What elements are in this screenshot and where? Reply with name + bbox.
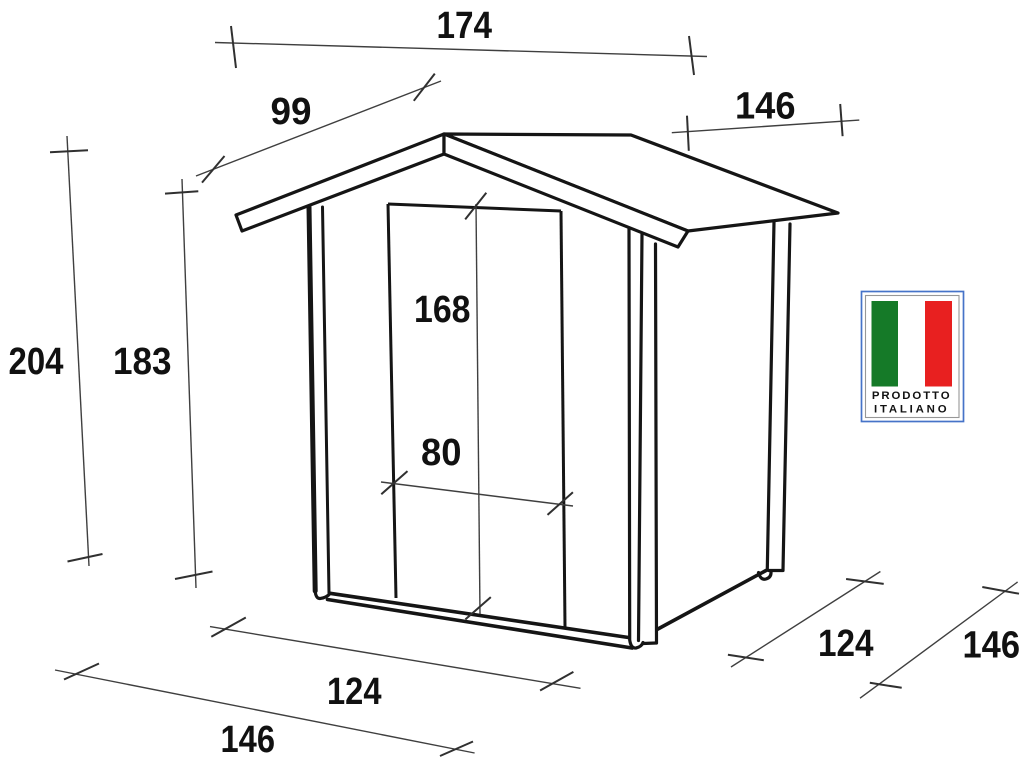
svg-text:183: 183	[113, 341, 172, 383]
svg-text:146: 146	[735, 86, 796, 128]
svg-text:ITALIANO: ITALIANO	[874, 404, 949, 416]
svg-text:174: 174	[437, 5, 493, 47]
svg-text:168: 168	[414, 289, 471, 331]
svg-text:80: 80	[421, 432, 462, 474]
svg-text:99: 99	[271, 91, 312, 133]
svg-text:124: 124	[818, 623, 874, 665]
svg-text:124: 124	[327, 671, 382, 713]
svg-text:PRODOTTO: PRODOTTO	[872, 390, 952, 402]
svg-text:204: 204	[9, 341, 64, 383]
svg-text:146: 146	[221, 719, 276, 761]
svg-text:146: 146	[963, 625, 1021, 667]
